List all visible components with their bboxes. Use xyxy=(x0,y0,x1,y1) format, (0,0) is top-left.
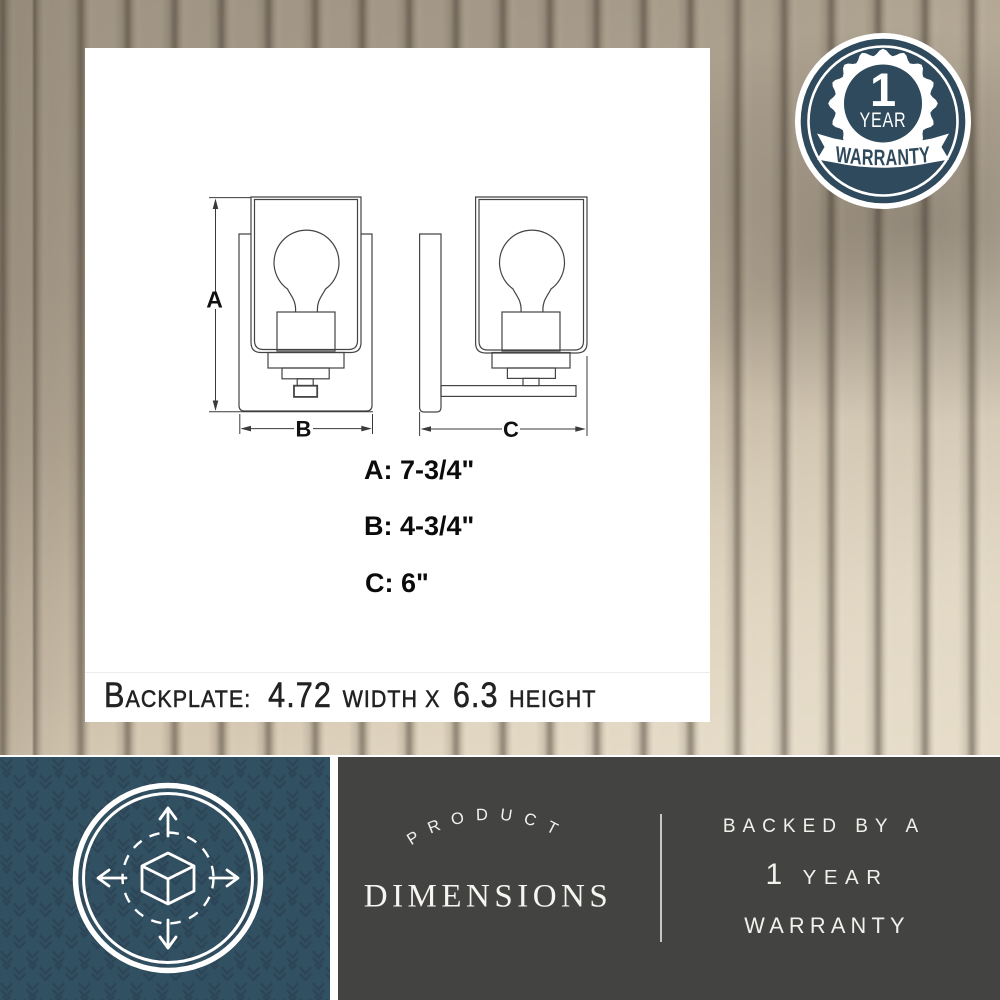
svg-text:YEAR: YEAR xyxy=(860,109,907,133)
svg-text:BACKED BY A: BACKED BY A xyxy=(723,816,925,837)
svg-text:WARRANTY: WARRANTY xyxy=(835,142,932,171)
svg-text:1YEAR: 1YEAR xyxy=(765,858,888,891)
svg-text:DIMENSIONS: DIMENSIONS xyxy=(364,879,613,915)
svg-text:C: C xyxy=(503,417,519,442)
svg-text:PRODUCT: PRODUCT xyxy=(404,806,571,849)
svg-text:B: B xyxy=(296,417,312,442)
svg-text:A: A xyxy=(206,287,223,313)
svg-text:WARRANTY: WARRANTY xyxy=(744,913,910,938)
